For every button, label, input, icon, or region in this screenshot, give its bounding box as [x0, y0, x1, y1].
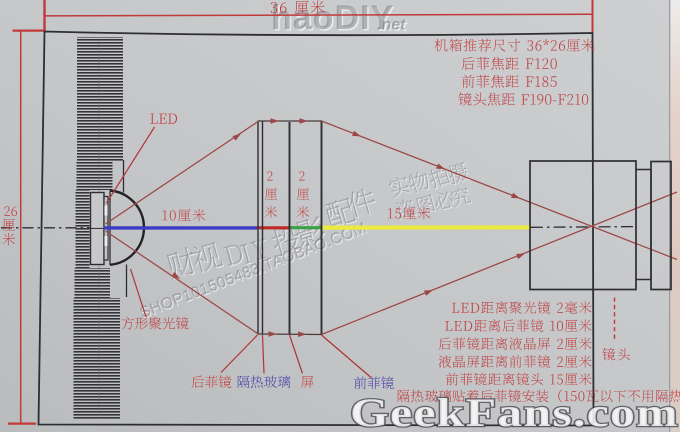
svg-text:haoDIY: haoDIY: [271, 0, 394, 37]
svg-text:GeekFans.com: GeekFans.com: [350, 391, 679, 432]
svg-text:.net: .net: [377, 17, 406, 34]
